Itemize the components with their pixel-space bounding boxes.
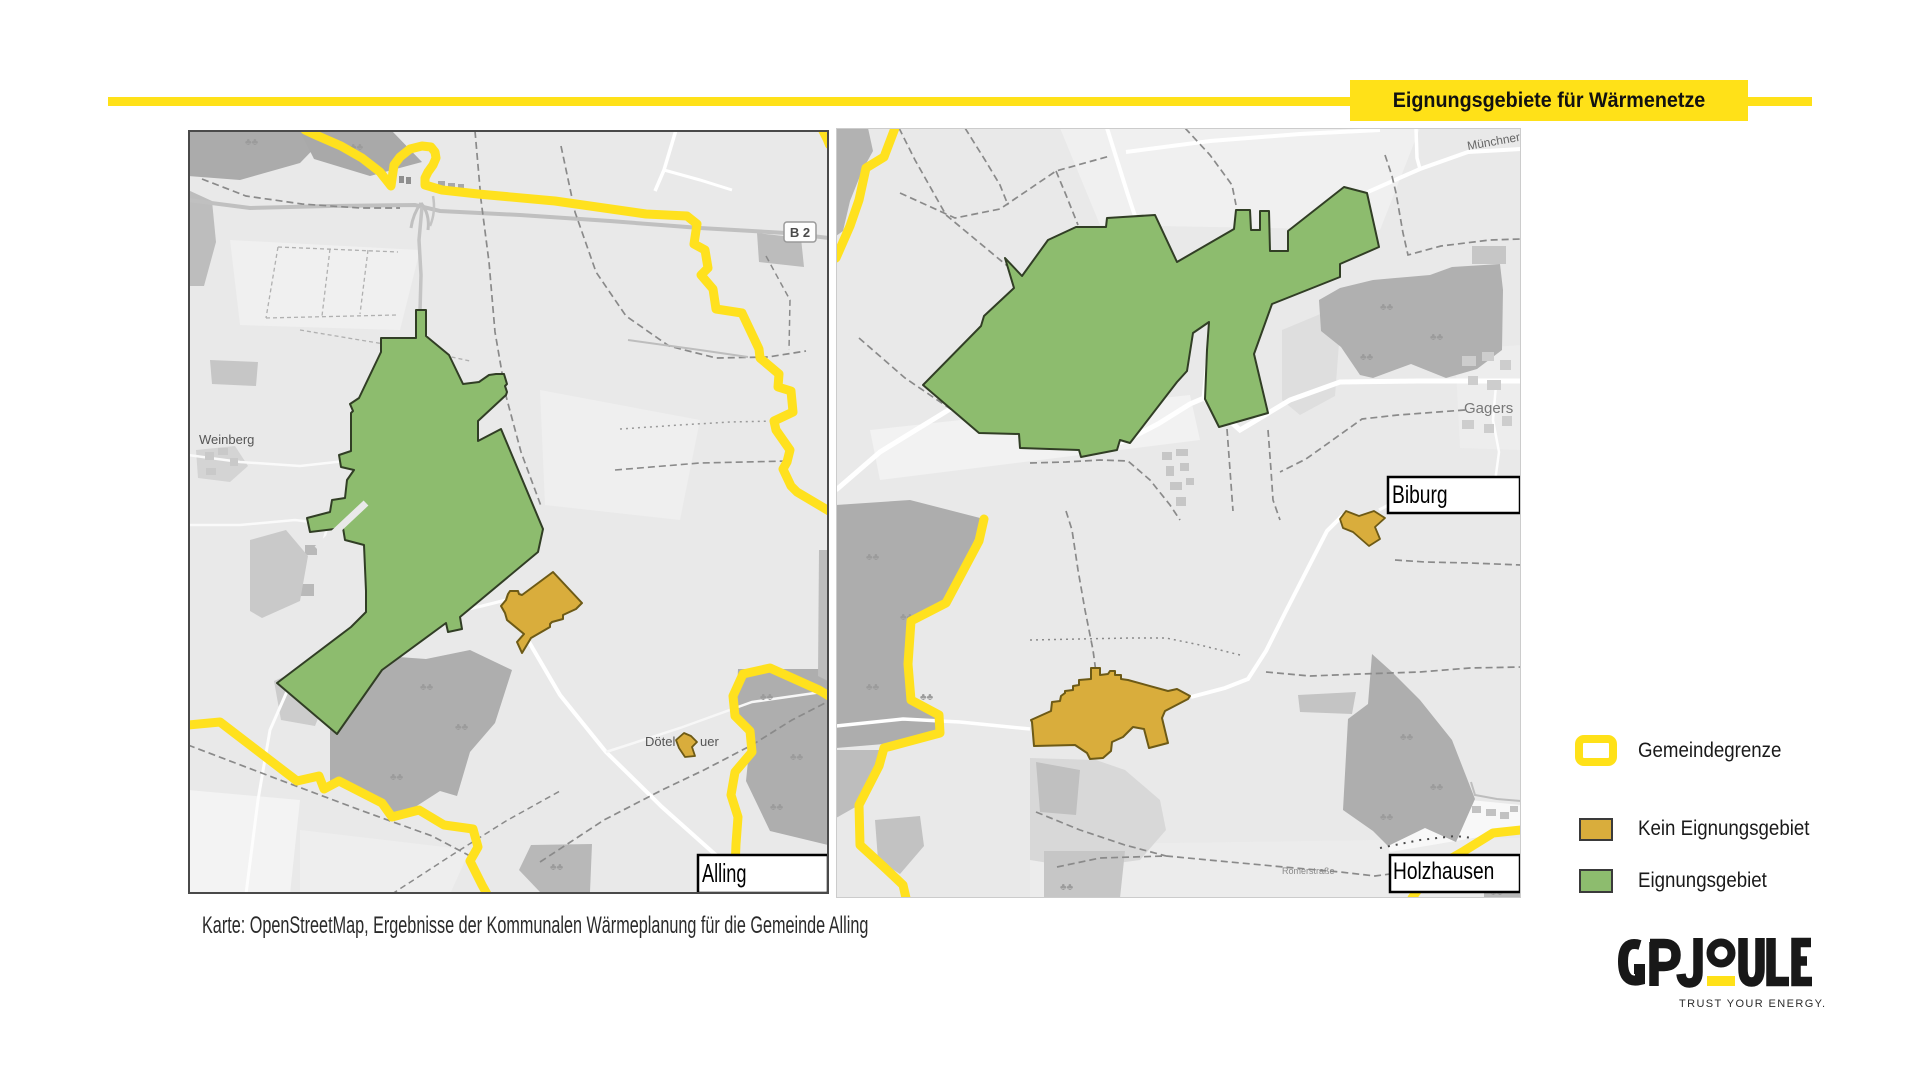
svg-text:♣♣: ♣♣ [1400,732,1414,743]
svg-text:♣♣: ♣♣ [1430,782,1444,793]
svg-text:♣♣: ♣♣ [390,772,404,783]
svg-text:♣♣: ♣♣ [1380,302,1394,313]
svg-text:uer: uer [700,734,719,749]
svg-text:♣♣: ♣♣ [760,692,774,703]
svg-text:♣♣: ♣♣ [866,552,880,563]
svg-text:♣♣: ♣♣ [1360,352,1374,363]
svg-text:B 2: B 2 [790,225,810,240]
svg-text:♣♣: ♣♣ [420,682,434,693]
svg-text:♣♣: ♣♣ [770,802,784,813]
svg-text:Weinberg: Weinberg [199,432,254,447]
svg-text:♣♣: ♣♣ [455,722,469,733]
svg-text:Römerstraße: Römerstraße [1282,866,1335,876]
svg-text:♣♣: ♣♣ [1380,812,1394,823]
svg-text:Holzhausen: Holzhausen [1393,857,1494,885]
svg-text:Alling: Alling [702,859,747,888]
svg-text:TRUST YOUR ENERGY.: TRUST YOUR ENERGY. [1679,998,1826,1010]
svg-text:♣♣: ♣♣ [245,137,259,148]
svg-text:♣♣: ♣♣ [790,752,804,763]
svg-text:♣♣: ♣♣ [866,682,880,693]
svg-text:Biburg: Biburg [1392,481,1448,509]
svg-text:Dötel: Dötel [645,734,675,749]
svg-text:♣♣: ♣♣ [550,862,564,873]
svg-text:♣♣: ♣♣ [1060,882,1074,893]
svg-text:Gagers: Gagers [1464,400,1513,417]
svg-text:♣♣: ♣♣ [1430,332,1444,343]
